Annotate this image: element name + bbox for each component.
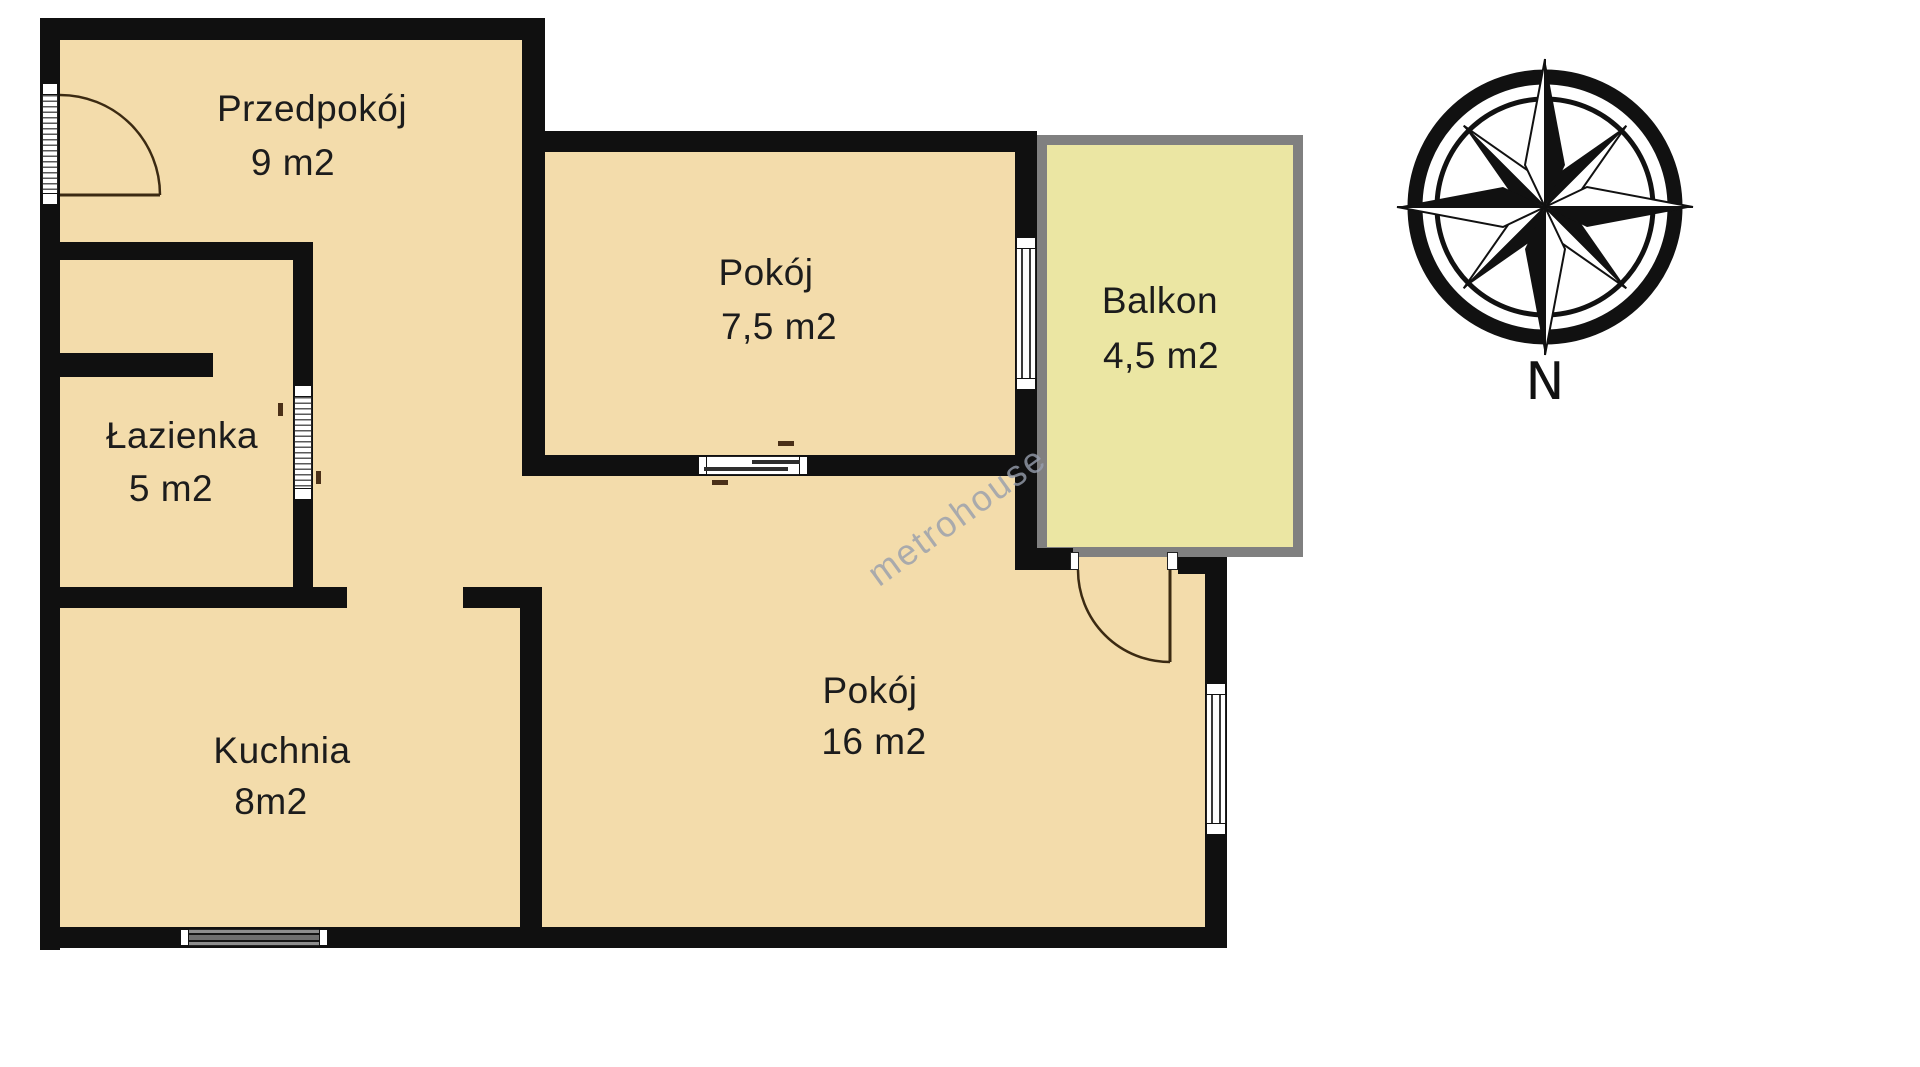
room-label-balkon: Balkon: [1102, 280, 1218, 322]
room-label-pokoj-duzy: Pokój: [822, 670, 917, 712]
room-label-kuchnia: Kuchnia: [213, 730, 350, 772]
room-label-pokoj-maly: Pokój: [718, 252, 813, 294]
wall-balcony-door-left: [1015, 548, 1073, 570]
entrance-door: [42, 83, 58, 205]
sliding-window-between-rooms: [698, 456, 808, 475]
wall-smallroom-top: [545, 131, 1037, 152]
wall-bath-kitchen: [40, 587, 347, 608]
room-label-przedpokoj: Przedpokój: [217, 88, 407, 130]
room-area-pokoj-duzy: 16 m2: [821, 721, 926, 763]
slide-tick: [778, 441, 794, 446]
smallroom-balcony-window: [1016, 237, 1036, 390]
balcony-door-jamb-left: [1070, 552, 1079, 570]
floor-area-small-room: [545, 131, 1037, 476]
room-area-przedpokoj: 9 m2: [251, 142, 335, 184]
wall-top: [40, 18, 545, 40]
floor-plan-canvas: Przedpokój 9 m2 Pokój 7,5 m2 Balkon 4,5 …: [0, 0, 1920, 1067]
wall-corridor: [522, 18, 545, 476]
room-label-lazienka: Łazienka: [106, 415, 258, 457]
slide-tick: [278, 403, 283, 416]
wall-bath-stub: [40, 353, 213, 377]
room-area-balkon: 4,5 m2: [1103, 335, 1219, 377]
room-area-kuchnia: 8m2: [234, 781, 307, 823]
room-area-pokoj-maly: 7,5 m2: [721, 306, 837, 348]
wall-hall-bath: [40, 242, 313, 260]
wall-kitchen-room: [520, 587, 542, 948]
room-area-lazienka: 5 m2: [129, 468, 213, 510]
sliding-pane-top: [752, 460, 800, 464]
compass-cardinal-points: [1397, 59, 1693, 355]
kitchen-window: [180, 929, 328, 946]
bigroom-right-window: [1206, 683, 1226, 835]
bathroom-door: [294, 385, 312, 500]
balcony-door-jamb-right: [1167, 552, 1178, 570]
slide-tick: [316, 471, 321, 484]
slide-tick: [712, 480, 728, 485]
north-label: N: [1526, 352, 1565, 412]
compass-rose-icon: [1385, 47, 1705, 367]
sliding-pane-bottom: [704, 467, 788, 471]
